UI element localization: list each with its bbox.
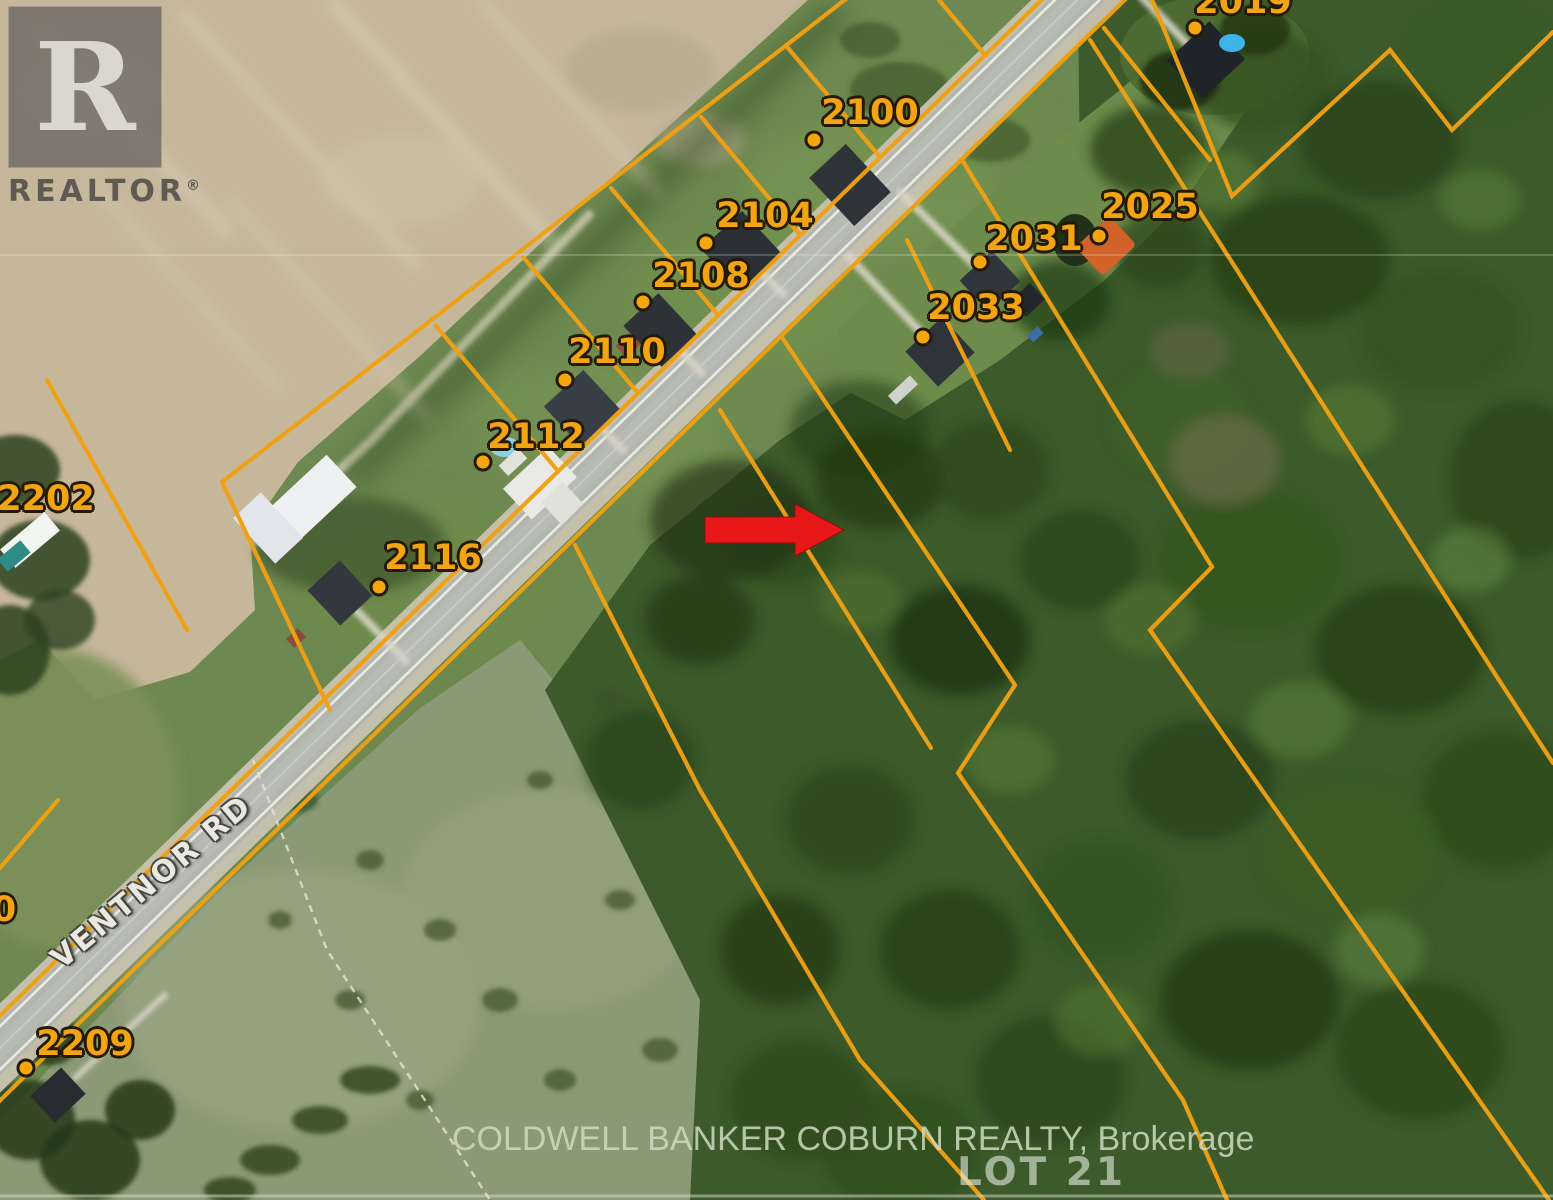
realtor-logo-letter: R [34, 26, 135, 148]
parcel-label-2110: 2110 [568, 332, 665, 372]
parcel-label-2112: 2112 [487, 417, 584, 457]
registered-trademark-symbol: ® [186, 178, 200, 194]
parcel-label-2108: 2108 [652, 256, 749, 296]
parcel-label-2104: 2104 [716, 196, 813, 236]
terrain [0, 0, 1553, 1200]
parcel-label-2031: 2031 [985, 219, 1082, 259]
parcel-label-2100: 2100 [821, 93, 918, 133]
aerial-parcel-map: 2100 2104 2108 2110 2112 2116 2202 2209 … [0, 0, 1553, 1200]
realtor-logo-icon: R [8, 6, 162, 168]
satellite-scene [0, 0, 1553, 1200]
parcel-label-2033: 2033 [927, 288, 1024, 328]
parcel-label-partial: 0 [0, 890, 16, 930]
realtor-logo-text: REALTOR® [8, 174, 180, 209]
pool-2019 [1219, 34, 1245, 52]
parcel-label-2202: 2202 [0, 479, 95, 519]
parcel-label-2209: 2209 [36, 1024, 133, 1064]
parcel-label-2019: 2019 [1194, 0, 1291, 22]
parcel-label-2025: 2025 [1101, 187, 1198, 227]
parcel-label-2116: 2116 [384, 538, 481, 578]
lot-number-label: LOT 21 [957, 1150, 1126, 1195]
brokerage-watermark: COLDWELL BANKER COBURN REALTY, Brokerage [452, 1120, 1254, 1159]
realtor-watermark: R REALTOR® [8, 6, 180, 209]
